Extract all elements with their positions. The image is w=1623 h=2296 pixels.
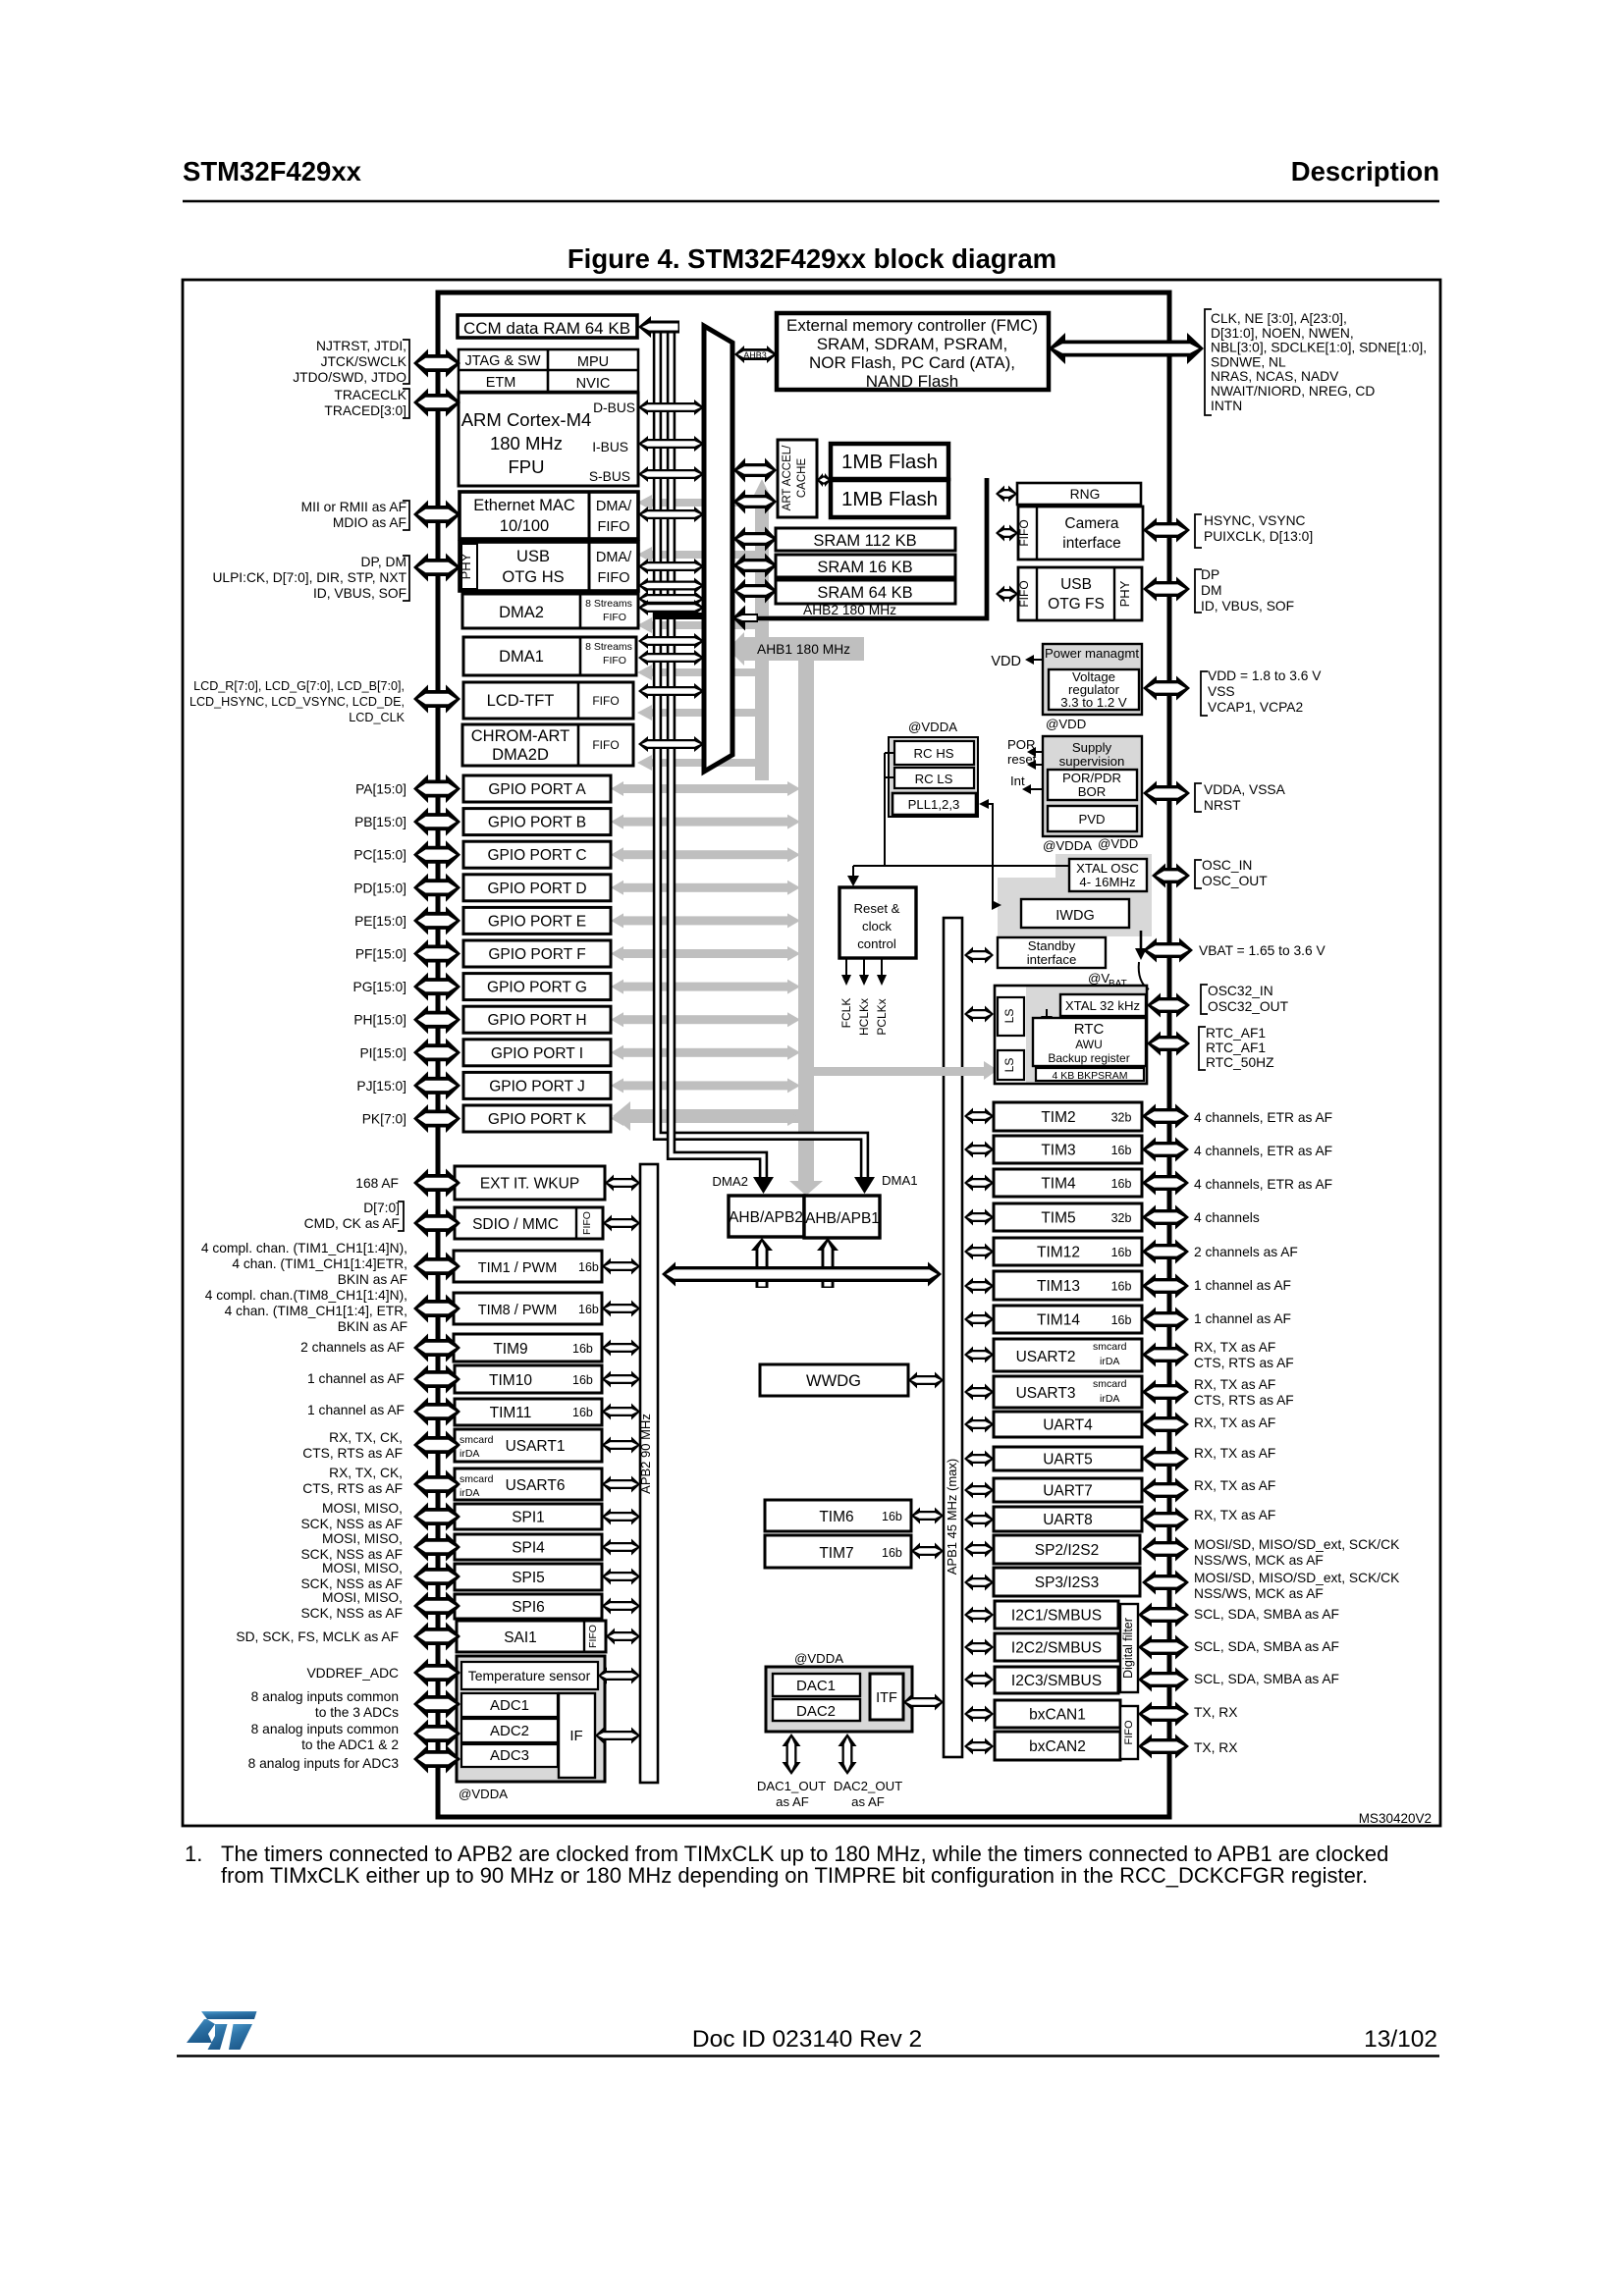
svg-text:MDIO as AF: MDIO as AF	[333, 515, 406, 530]
svg-text:FIFO: FIFO	[597, 519, 629, 535]
svg-text:FPU: FPU	[509, 456, 545, 477]
svg-text:DP: DP	[1201, 567, 1219, 582]
svg-text:DAC1: DAC1	[796, 1678, 836, 1694]
svg-text:LCD_R[7:0], LCD_G[7:0], LCD_B[: LCD_R[7:0], LCD_G[7:0], LCD_B[7:0],	[193, 679, 405, 693]
svg-text:RX, TX, CK,: RX, TX, CK,	[329, 1430, 403, 1445]
svg-text:TRACED[3:0]: TRACED[3:0]	[324, 403, 406, 418]
svg-text:ADC2: ADC2	[490, 1723, 529, 1739]
svg-text:@VDDA: @VDDA	[908, 720, 957, 734]
svg-text:16b: 16b	[572, 1406, 593, 1419]
svg-text:32b: 32b	[1111, 1211, 1132, 1225]
svg-text:DMA/: DMA/	[596, 499, 632, 514]
svg-text:BKIN as AF: BKIN as AF	[338, 1319, 407, 1334]
svg-text:16b: 16b	[1111, 1177, 1132, 1191]
svg-text:MOSI/SD, MISO/SD_ext, SCK/CK: MOSI/SD, MISO/SD_ext, SCK/CK	[1194, 1537, 1400, 1552]
svg-text:PB[15:0]: PB[15:0]	[354, 815, 406, 829]
svg-text:PHY: PHY	[1117, 580, 1132, 607]
svg-text:to the ADC1 & 2: to the ADC1 & 2	[301, 1737, 399, 1752]
svg-text:RX, TX as AF: RX, TX as AF	[1194, 1415, 1275, 1430]
svg-text:SDIO / MMC: SDIO / MMC	[472, 1216, 559, 1233]
svg-text:SRAM 112 KB: SRAM 112 KB	[813, 532, 916, 550]
svg-text:GPIO PORT B: GPIO PORT B	[488, 815, 586, 831]
svg-text:DAC2_OUT: DAC2_OUT	[834, 1779, 902, 1793]
svg-text:16b: 16b	[578, 1303, 599, 1316]
svg-text:TIM6: TIM6	[819, 1509, 853, 1525]
svg-text:SCK, NSS as AF: SCK, NSS as AF	[300, 1547, 403, 1562]
svg-text:LCD_CLK: LCD_CLK	[349, 711, 405, 724]
svg-text:D-BUS: D-BUS	[593, 400, 635, 415]
svg-text:FIFO: FIFO	[1123, 1720, 1135, 1744]
svg-text:VDDREF_ADC: VDDREF_ADC	[306, 1666, 399, 1681]
svg-text:4 compl. chan.(TIM8_CH1[1:4]N): 4 compl. chan.(TIM8_CH1[1:4]N),	[205, 1288, 407, 1303]
svg-text:PG[15:0]: PG[15:0]	[353, 980, 406, 994]
svg-text:PHY: PHY	[459, 553, 473, 579]
svg-text:JTDO/SWD, JTDO: JTDO/SWD, JTDO	[293, 370, 406, 385]
svg-text:FIFO: FIFO	[592, 738, 619, 752]
svg-text:PUIXCLK, D[13:0]: PUIXCLK, D[13:0]	[1204, 529, 1313, 544]
svg-text:UART4: UART4	[1043, 1417, 1093, 1434]
svg-text:irDA: irDA	[460, 1487, 479, 1499]
svg-text:WWDG: WWDG	[806, 1372, 861, 1390]
svg-text:AHB/APB1: AHB/APB1	[805, 1210, 880, 1227]
svg-text:16b: 16b	[572, 1342, 593, 1356]
svg-text:10/100: 10/100	[500, 517, 549, 535]
svg-text:@VDD: @VDD	[1098, 836, 1138, 851]
svg-text:PH[15:0]: PH[15:0]	[353, 1013, 406, 1028]
svg-text:@VDD: @VDD	[1046, 717, 1086, 731]
svg-text:Doc ID 023140 Rev 2: Doc ID 023140 Rev 2	[692, 2026, 922, 2053]
svg-text:OTG FS: OTG FS	[1048, 596, 1105, 613]
svg-text:GPIO PORT G: GPIO PORT G	[487, 980, 587, 996]
svg-text:3.3 to 1.2 V: 3.3 to 1.2 V	[1060, 695, 1127, 710]
svg-text:DMA1: DMA1	[882, 1173, 918, 1188]
svg-text:TRACECLK: TRACECLK	[334, 388, 406, 402]
svg-text:PD[15:0]: PD[15:0]	[353, 881, 406, 895]
svg-text:VCAP1, VCPA2: VCAP1, VCPA2	[1208, 700, 1303, 715]
svg-text:MII or RMII as AF: MII or RMII as AF	[301, 500, 406, 514]
svg-text:SCK, NSS as AF: SCK, NSS as AF	[300, 1517, 403, 1531]
svg-text:4 KB BKPSRAM: 4 KB BKPSRAM	[1052, 1070, 1127, 1082]
svg-text:CTS, RTS as AF: CTS, RTS as AF	[1194, 1356, 1294, 1370]
svg-text:OSC32_OUT: OSC32_OUT	[1208, 999, 1289, 1014]
svg-text:@VDDA: @VDDA	[459, 1787, 508, 1801]
svg-text:USB: USB	[516, 548, 550, 565]
svg-text:RTC: RTC	[1074, 1021, 1105, 1038]
svg-text:TX, RX: TX, RX	[1194, 1740, 1237, 1755]
svg-text:DAC2: DAC2	[796, 1703, 836, 1720]
svg-text:PA[15:0]: PA[15:0]	[355, 782, 406, 797]
svg-text:interface: interface	[1062, 535, 1120, 552]
svg-text:SP3/I2S3: SP3/I2S3	[1035, 1575, 1100, 1591]
svg-text:NOR Flash, PC Card (ATA),: NOR Flash, PC Card (ATA),	[809, 353, 1015, 372]
svg-text:NRAS, NCAS, NADV: NRAS, NCAS, NADV	[1211, 369, 1339, 384]
svg-text:TIM14: TIM14	[1037, 1312, 1080, 1329]
svg-text:Standby: Standby	[1028, 938, 1076, 953]
svg-text:ADC1: ADC1	[490, 1697, 529, 1714]
svg-text:External memory controller (FM: External memory controller (FMC)	[786, 316, 1038, 335]
svg-text:interface: interface	[1027, 952, 1077, 967]
svg-text:FIFO: FIFO	[597, 570, 629, 586]
svg-text:OSC32_IN: OSC32_IN	[1208, 984, 1273, 998]
svg-text:TIM8 / PWM: TIM8 / PWM	[478, 1303, 558, 1318]
svg-text:RX, TX as AF: RX, TX as AF	[1194, 1508, 1275, 1522]
svg-text:RX, TX as AF: RX, TX as AF	[1194, 1340, 1275, 1355]
svg-text:as AF: as AF	[776, 1794, 809, 1809]
svg-text:CTS, RTS as AF: CTS, RTS as AF	[302, 1481, 403, 1496]
svg-text:APB2 90 MHz: APB2 90 MHz	[638, 1414, 653, 1494]
svg-text:4 channels, ETR as AF: 4 channels, ETR as AF	[1194, 1144, 1332, 1158]
svg-text:EXT IT. WKUP: EXT IT. WKUP	[480, 1176, 579, 1193]
svg-text:MOSI, MISO,: MOSI, MISO,	[322, 1501, 403, 1516]
svg-text:@V: @V	[1088, 971, 1109, 986]
svg-text:control: control	[857, 936, 896, 951]
svg-text:PJ[15:0]: PJ[15:0]	[356, 1079, 406, 1094]
svg-text:FIFO: FIFO	[592, 694, 619, 708]
svg-text:TIM4: TIM4	[1041, 1176, 1076, 1193]
svg-text:8 analog inputs for ADC3: 8 analog inputs for ADC3	[248, 1756, 400, 1771]
svg-text:INTN: INTN	[1211, 399, 1242, 413]
svg-text:BKIN as AF: BKIN as AF	[338, 1272, 407, 1287]
svg-text:BOR: BOR	[1078, 784, 1107, 799]
svg-text:UART8: UART8	[1043, 1512, 1093, 1528]
svg-text:PC[15:0]: PC[15:0]	[353, 848, 406, 863]
svg-text:USART1: USART1	[506, 1438, 566, 1455]
svg-text:SCL, SDA, SMBA as AF: SCL, SDA, SMBA as AF	[1194, 1607, 1339, 1622]
svg-text:Description: Description	[1291, 156, 1439, 187]
svg-text:LCD-TFT: LCD-TFT	[487, 692, 555, 710]
svg-text:RTC_AF1: RTC_AF1	[1206, 1041, 1266, 1055]
svg-text:SRAM, SDRAM, PSRAM,: SRAM, SDRAM, PSRAM,	[817, 335, 1008, 353]
svg-text:GPIO PORT A: GPIO PORT A	[488, 781, 586, 798]
svg-text:VSS: VSS	[1208, 684, 1235, 699]
svg-text:MOSI/SD, MISO/SD_ext, SCK/CK: MOSI/SD, MISO/SD_ext, SCK/CK	[1194, 1571, 1400, 1585]
svg-text:IF: IF	[569, 1728, 582, 1744]
svg-text:FIFO: FIFO	[603, 655, 626, 667]
svg-text:RTC_50HZ: RTC_50HZ	[1206, 1055, 1274, 1070]
svg-text:APB1 45 MHz (max): APB1 45 MHz (max)	[945, 1459, 959, 1575]
svg-text:ART ACCEL/: ART ACCEL/	[782, 445, 793, 510]
svg-text:HSYNC, VSYNC: HSYNC, VSYNC	[1204, 513, 1306, 528]
svg-text:ITF: ITF	[876, 1690, 897, 1706]
svg-text:32b: 32b	[1111, 1111, 1132, 1125]
svg-text:SPI1: SPI1	[512, 1510, 545, 1526]
svg-text:Int: Int	[1010, 774, 1025, 788]
svg-text:SRAM 64 KB: SRAM 64 KB	[817, 584, 912, 602]
svg-text:DMA/: DMA/	[596, 550, 632, 565]
svg-text:CHROM-ART: CHROM-ART	[471, 727, 570, 745]
svg-text:@VDDA: @VDDA	[794, 1651, 843, 1666]
svg-text:13/102: 13/102	[1364, 2026, 1437, 2053]
svg-text:SCL, SDA, SMBA as AF: SCL, SDA, SMBA as AF	[1194, 1672, 1339, 1686]
svg-text:8 analog inputs common: 8 analog inputs common	[251, 1722, 399, 1736]
svg-text:Supply: Supply	[1072, 740, 1112, 755]
svg-text:NJTRST, JTDI,: NJTRST, JTDI,	[316, 339, 406, 353]
svg-text:MOSI, MISO,: MOSI, MISO,	[322, 1590, 403, 1605]
svg-text:LCD_HSYNC, LCD_VSYNC, LCD_DE,: LCD_HSYNC, LCD_VSYNC, LCD_DE,	[189, 695, 405, 709]
svg-text:PCLKx: PCLKx	[875, 998, 889, 1035]
svg-text:PE[15:0]: PE[15:0]	[354, 914, 406, 929]
svg-text:SCK, NSS as AF: SCK, NSS as AF	[300, 1606, 403, 1621]
svg-text:AHB3: AHB3	[743, 350, 767, 360]
svg-text:RX, TX as AF: RX, TX as AF	[1194, 1478, 1275, 1493]
svg-text:LS: LS	[1002, 1009, 1016, 1024]
svg-text:FIFO: FIFO	[587, 1625, 599, 1648]
svg-text:CACHE: CACHE	[796, 458, 808, 499]
svg-text:PK[7:0]: PK[7:0]	[362, 1112, 406, 1127]
svg-text:RC HS: RC HS	[913, 746, 953, 761]
svg-text:MOSI, MISO,: MOSI, MISO,	[322, 1561, 403, 1575]
svg-text:I2C2/SMBUS: I2C2/SMBUS	[1011, 1640, 1102, 1657]
svg-text:8 Streams: 8 Streams	[585, 641, 632, 653]
svg-text:VDDA, VSSA: VDDA, VSSA	[1204, 782, 1286, 797]
svg-text:DAC1_OUT: DAC1_OUT	[757, 1779, 826, 1793]
svg-text:USB: USB	[1060, 576, 1092, 593]
svg-text:@VDDA: @VDDA	[1043, 838, 1092, 853]
svg-text:ETM: ETM	[486, 375, 516, 391]
svg-text:Figure 4. STM32F429xx block di: Figure 4. STM32F429xx block diagram	[568, 243, 1056, 274]
svg-text:CTS, RTS as AF: CTS, RTS as AF	[1194, 1393, 1294, 1408]
svg-text:RX, TX as AF: RX, TX as AF	[1194, 1377, 1275, 1392]
svg-text:DMA1: DMA1	[499, 648, 544, 666]
svg-text:smcard: smcard	[460, 1473, 494, 1485]
svg-text:clock: clock	[862, 919, 892, 934]
svg-text:VDD = 1.8 to 3.6 V: VDD = 1.8 to 3.6 V	[1208, 668, 1322, 683]
svg-text:PVD: PVD	[1078, 812, 1105, 827]
svg-text:DMA2D: DMA2D	[492, 746, 549, 764]
svg-text:AHB/APB2: AHB/APB2	[729, 1209, 803, 1226]
svg-text:ID, VBUS, SOF: ID, VBUS, SOF	[313, 586, 406, 601]
svg-text:4 channels, ETR as AF: 4 channels, ETR as AF	[1194, 1177, 1332, 1192]
svg-text:GPIO PORT J: GPIO PORT J	[489, 1078, 585, 1095]
svg-text:SPI6: SPI6	[512, 1599, 545, 1616]
svg-text:ID, VBUS, SOF: ID, VBUS, SOF	[1201, 599, 1294, 614]
svg-text:S-BUS: S-BUS	[589, 469, 630, 484]
svg-text:as AF: as AF	[851, 1794, 885, 1809]
svg-text:FIFO: FIFO	[1017, 580, 1031, 607]
svg-text:4 channels, ETR as AF: 4 channels, ETR as AF	[1194, 1110, 1332, 1125]
svg-text:CLK, NE [3:0], A[23:0],: CLK, NE [3:0], A[23:0],	[1211, 311, 1347, 326]
svg-text:GPIO PORT K: GPIO PORT K	[488, 1111, 587, 1128]
svg-text:to the 3 ADCs: to the 3 ADCs	[315, 1705, 399, 1720]
svg-text:Digital filter: Digital filter	[1121, 1618, 1135, 1679]
svg-text:2 channels as AF: 2 channels as AF	[1194, 1245, 1298, 1259]
svg-text:16b: 16b	[1111, 1313, 1132, 1327]
svg-text:GPIO PORT H: GPIO PORT H	[487, 1012, 586, 1029]
svg-text:USART6: USART6	[506, 1477, 566, 1494]
svg-text:4- 16MHz: 4- 16MHz	[1079, 875, 1135, 889]
svg-text:Ethernet MAC: Ethernet MAC	[473, 497, 575, 514]
svg-text:OSC_OUT: OSC_OUT	[1202, 874, 1268, 888]
svg-text:irDA: irDA	[1100, 1393, 1119, 1405]
svg-text:I-BUS: I-BUS	[592, 440, 628, 454]
svg-text:PF[15:0]: PF[15:0]	[355, 947, 406, 962]
svg-text:supervision: supervision	[1059, 754, 1125, 769]
svg-text:bxCAN2: bxCAN2	[1029, 1738, 1086, 1755]
svg-text:GPIO PORT E: GPIO PORT E	[488, 913, 586, 930]
svg-text:8 analog inputs common: 8 analog inputs common	[251, 1689, 399, 1704]
svg-text:ARM Cortex-M4: ARM Cortex-M4	[461, 409, 592, 430]
svg-text:Camera: Camera	[1064, 515, 1119, 532]
svg-text:1 channel as AF: 1 channel as AF	[1194, 1278, 1291, 1293]
svg-text:168 AF: 168 AF	[355, 1176, 399, 1191]
svg-text:AHB1 180 MHz: AHB1 180 MHz	[757, 642, 850, 657]
svg-text:GPIO PORT D: GPIO PORT D	[487, 881, 586, 897]
svg-text:USART2: USART2	[1016, 1349, 1076, 1365]
svg-text:SCK, NSS as AF: SCK, NSS as AF	[300, 1576, 403, 1591]
svg-text:smcard: smcard	[460, 1434, 494, 1446]
svg-text:I2C1/SMBUS: I2C1/SMBUS	[1011, 1608, 1102, 1625]
svg-text:4 channels: 4 channels	[1194, 1210, 1260, 1225]
svg-text:SPI4: SPI4	[512, 1540, 545, 1557]
svg-text:FIFO: FIFO	[581, 1211, 593, 1235]
svg-text:NSS/WS, MCK as AF: NSS/WS, MCK as AF	[1194, 1553, 1324, 1568]
svg-text:irDA: irDA	[460, 1448, 479, 1460]
svg-text:NSS/WS, MCK as AF: NSS/WS, MCK as AF	[1194, 1586, 1324, 1601]
svg-text:MPU: MPU	[577, 354, 609, 370]
svg-text:TIM11: TIM11	[490, 1405, 532, 1421]
svg-text:PI[15:0]: PI[15:0]	[359, 1045, 406, 1060]
svg-text:16b: 16b	[1111, 1246, 1132, 1259]
svg-text:SAI1: SAI1	[504, 1629, 537, 1646]
svg-text:SCL, SDA, SMBA as AF: SCL, SDA, SMBA as AF	[1194, 1639, 1339, 1654]
svg-text:16b: 16b	[578, 1260, 599, 1274]
svg-text:D[31:0], NOEN, NWEN,: D[31:0], NOEN, NWEN,	[1211, 326, 1354, 341]
svg-text:AWU: AWU	[1075, 1038, 1103, 1051]
svg-text:SDNWE, NL: SDNWE, NL	[1211, 354, 1286, 369]
svg-text:smcard: smcard	[1093, 1378, 1127, 1390]
svg-text:Backup register: Backup register	[1048, 1051, 1129, 1065]
svg-text:DP, DM: DP, DM	[360, 555, 406, 569]
svg-text:NVIC: NVIC	[576, 376, 611, 392]
svg-text:DMA2: DMA2	[499, 604, 544, 621]
svg-text:XTAL 32 kHz: XTAL 32 kHz	[1065, 998, 1140, 1013]
svg-text:CCM data RAM 64 KB: CCM data RAM 64 KB	[463, 319, 630, 338]
svg-text:TX, RX: TX, RX	[1194, 1705, 1237, 1720]
svg-text:D[7:0]: D[7:0]	[363, 1201, 400, 1215]
svg-text:bxCAN1: bxCAN1	[1029, 1707, 1086, 1724]
svg-text:IWDG: IWDG	[1055, 908, 1094, 924]
svg-text:JTCK/SWCLK: JTCK/SWCLK	[321, 354, 407, 369]
svg-text:8 Streams: 8 Streams	[585, 598, 632, 610]
svg-text:from TIMxCLK either up to 90 M: from TIMxCLK either up to 90 MHz or 180 …	[221, 1863, 1368, 1888]
svg-text:NRST: NRST	[1204, 798, 1241, 813]
svg-text:FCLK: FCLK	[839, 998, 853, 1029]
svg-text:PLL1,2,3: PLL1,2,3	[908, 797, 960, 812]
svg-text:16b: 16b	[1111, 1144, 1132, 1157]
svg-text:16b: 16b	[572, 1373, 593, 1387]
svg-text:SP2/I2S2: SP2/I2S2	[1035, 1542, 1100, 1559]
svg-text:MS30420V2: MS30420V2	[1359, 1811, 1432, 1826]
svg-text:1 channel as AF: 1 channel as AF	[1194, 1311, 1291, 1326]
svg-text:TIM10: TIM10	[489, 1372, 532, 1389]
svg-text:16b: 16b	[1111, 1280, 1132, 1294]
svg-text:SD, SCK, FS, MCLK as AF: SD, SCK, FS, MCLK as AF	[236, 1629, 399, 1644]
svg-text:XTAL OSC: XTAL OSC	[1076, 861, 1139, 876]
svg-text:TIM7: TIM7	[819, 1545, 853, 1562]
svg-text:NWAIT/NIORD, NREG, CD: NWAIT/NIORD, NREG, CD	[1211, 384, 1375, 399]
svg-text:1MB Flash: 1MB Flash	[841, 488, 938, 510]
svg-text:1 channel as AF: 1 channel as AF	[307, 1371, 405, 1386]
svg-text:LS: LS	[1002, 1058, 1016, 1073]
svg-text:irDA: irDA	[1100, 1356, 1119, 1367]
svg-text:1 channel as AF: 1 channel as AF	[307, 1403, 405, 1417]
svg-text:TIM5: TIM5	[1041, 1210, 1075, 1227]
svg-text:GPIO PORT C: GPIO PORT C	[487, 847, 586, 864]
svg-text:ADC3: ADC3	[490, 1747, 529, 1764]
svg-text:JTAG & SW: JTAG & SW	[464, 353, 540, 369]
svg-text:TIM9: TIM9	[493, 1341, 527, 1358]
svg-text:UART7: UART7	[1043, 1483, 1093, 1500]
svg-text:TIM1 / PWM: TIM1 / PWM	[478, 1260, 558, 1276]
svg-text:16b: 16b	[882, 1510, 902, 1523]
svg-text:1MB Flash: 1MB Flash	[841, 451, 938, 473]
svg-text:VDD: VDD	[991, 654, 1021, 669]
svg-text:180 MHz: 180 MHz	[490, 433, 563, 454]
svg-text:ULPI:CK, D[7:0], DIR, STP, NXT: ULPI:CK, D[7:0], DIR, STP, NXT	[212, 570, 406, 585]
svg-text:VBAT = 1.65 to 3.6 V: VBAT = 1.65 to 3.6 V	[1199, 943, 1326, 958]
svg-text:4 chan. (TIM1_CH1[1:4]ETR,: 4 chan. (TIM1_CH1[1:4]ETR,	[232, 1256, 407, 1271]
svg-text:RNG: RNG	[1070, 487, 1101, 502]
svg-text:GPIO PORT I: GPIO PORT I	[491, 1045, 583, 1062]
svg-text:RX, TX as AF: RX, TX as AF	[1194, 1446, 1275, 1461]
svg-text:2 channels as AF: 2 channels as AF	[300, 1340, 405, 1355]
svg-text:STM32F429xx: STM32F429xx	[183, 156, 362, 187]
svg-text:FIFO: FIFO	[603, 612, 626, 623]
svg-text:TIM3: TIM3	[1041, 1143, 1075, 1159]
svg-text:TIM13: TIM13	[1037, 1278, 1080, 1295]
svg-text:SRAM 16 KB: SRAM 16 KB	[817, 559, 912, 576]
svg-text:smcard: smcard	[1093, 1341, 1127, 1353]
svg-text:OTG HS: OTG HS	[502, 568, 564, 586]
svg-text:GPIO PORT F: GPIO PORT F	[488, 946, 585, 963]
svg-text:POR/PDR: POR/PDR	[1062, 771, 1121, 785]
svg-text:Temperature sensor: Temperature sensor	[468, 1668, 591, 1683]
svg-text:Reset &: Reset &	[854, 901, 900, 916]
svg-text:TIM2: TIM2	[1041, 1109, 1075, 1126]
svg-text:DMA2: DMA2	[712, 1174, 748, 1189]
svg-text:I2C3/SMBUS: I2C3/SMBUS	[1011, 1673, 1102, 1689]
svg-text:MOSI, MISO,: MOSI, MISO,	[322, 1531, 403, 1546]
svg-text:USART3: USART3	[1016, 1385, 1076, 1402]
svg-text:NAND Flash: NAND Flash	[866, 372, 958, 391]
svg-text:CTS, RTS as AF: CTS, RTS as AF	[302, 1446, 403, 1461]
svg-text:HCLKx: HCLKx	[857, 998, 871, 1036]
svg-text:RX, TX, CK,: RX, TX, CK,	[329, 1466, 403, 1480]
svg-text:TIM12: TIM12	[1037, 1245, 1080, 1261]
svg-text:OSC_IN: OSC_IN	[1202, 858, 1252, 873]
svg-text:NBL[3:0], SDCLKE[1:0], SDNE[1:: NBL[3:0], SDCLKE[1:0], SDNE[1:0],	[1211, 341, 1427, 355]
svg-text:UART5: UART5	[1043, 1452, 1093, 1468]
svg-text:RC LS: RC LS	[915, 772, 953, 786]
svg-text:16b: 16b	[882, 1546, 902, 1560]
svg-text:4 chan. (TIM8_CH1[1:4], ETR,: 4 chan. (TIM8_CH1[1:4], ETR,	[225, 1304, 407, 1318]
svg-text:DM: DM	[1201, 583, 1221, 598]
svg-text:SPI5: SPI5	[512, 1570, 545, 1586]
svg-text:4 compl. chan. (TIM1_CH1[1:4]N: 4 compl. chan. (TIM1_CH1[1:4]N),	[201, 1241, 407, 1255]
svg-text:RTC_AF1: RTC_AF1	[1206, 1026, 1266, 1041]
svg-text:1.: 1.	[185, 1842, 202, 1866]
svg-text:Power managmt: Power managmt	[1045, 646, 1139, 661]
svg-text:CMD, CK as AF: CMD, CK as AF	[304, 1216, 400, 1231]
svg-text:FIFO: FIFO	[1017, 519, 1031, 546]
